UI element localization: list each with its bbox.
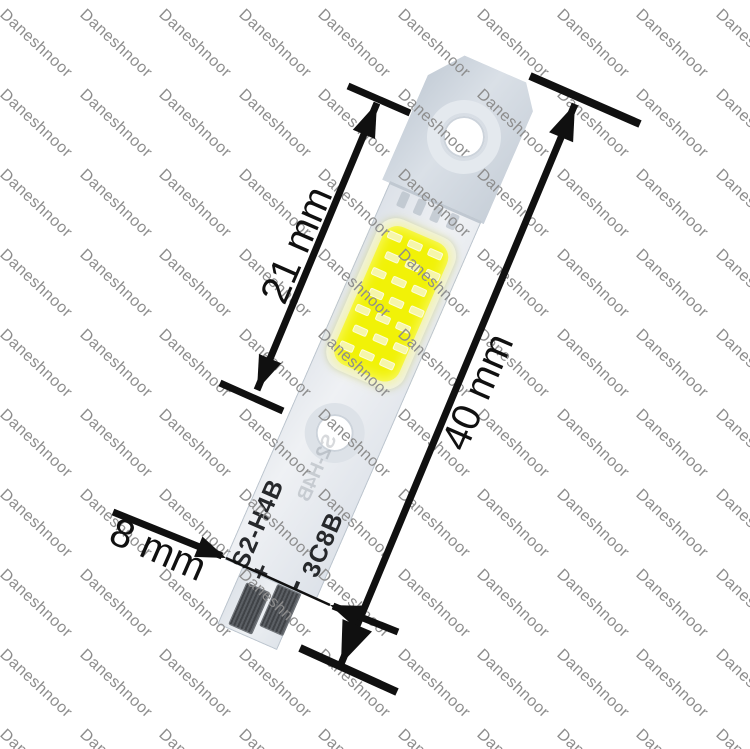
watermark-text: Daneshnoor — [155, 726, 235, 749]
led-die — [406, 239, 423, 252]
watermark-text: Daneshnoor — [155, 246, 235, 322]
watermark-text: Daneshnoor — [0, 486, 75, 562]
watermark-text: Daneshnoor — [711, 326, 750, 402]
watermark-text: Daneshnoor — [155, 6, 235, 82]
led-die — [392, 341, 409, 354]
watermark-text: Daneshnoor — [75, 326, 155, 402]
led-die — [388, 296, 405, 309]
watermark-text: Daneshnoor — [75, 406, 155, 482]
led-die — [374, 312, 391, 325]
led-die — [390, 275, 407, 288]
watermark-text: Daneshnoor — [552, 326, 632, 402]
arrowhead-40mm-top — [549, 104, 575, 142]
watermark-text: Daneshnoor — [393, 486, 473, 562]
watermark-text: Daneshnoor — [632, 406, 712, 482]
watermark-text: Daneshnoor — [632, 246, 712, 322]
watermark-text: Daneshnoor — [552, 646, 632, 722]
watermark-text: Daneshnoor — [552, 726, 632, 749]
led-die — [408, 305, 425, 318]
watermark-text: Daneshnoor — [75, 646, 155, 722]
led-die — [358, 349, 375, 362]
watermark-text: Daneshnoor — [314, 726, 394, 749]
watermark-text: Daneshnoor — [75, 726, 155, 749]
watermark-text: Daneshnoor — [0, 166, 75, 242]
led-die — [378, 357, 395, 370]
watermark-text: Daneshnoor — [473, 246, 553, 322]
watermark-text: Daneshnoor — [0, 246, 75, 322]
watermark-text: Daneshnoor — [711, 246, 750, 322]
watermark-text: Daneshnoor — [75, 166, 155, 242]
watermark-text: Daneshnoor — [0, 726, 75, 749]
watermark-text: Daneshnoor — [632, 166, 712, 242]
extension-tick-40mm-bottom — [300, 648, 397, 692]
led-die — [410, 284, 427, 297]
watermark-text: Daneshnoor — [552, 566, 632, 642]
watermark-text: Daneshnoor — [0, 86, 75, 162]
led-die — [404, 259, 421, 272]
watermark-text: Daneshnoor — [632, 566, 712, 642]
watermark-text: Daneshnoor — [711, 486, 750, 562]
led-die — [424, 268, 441, 281]
led-die — [338, 340, 355, 353]
watermark-text: Daneshnoor — [0, 6, 75, 82]
watermark-text: Daneshnoor — [711, 86, 750, 162]
led-die — [354, 303, 371, 316]
watermark-text: Daneshnoor — [0, 326, 75, 402]
watermark-text: Daneshnoor — [75, 246, 155, 322]
watermark-text: Daneshnoor — [314, 86, 394, 162]
arrowhead-21mm-top — [353, 103, 377, 139]
watermark-text: Daneshnoor — [632, 646, 712, 722]
watermark-text: Daneshnoor — [473, 566, 553, 642]
led-die — [367, 287, 384, 300]
watermark-text: Daneshnoor — [234, 246, 314, 322]
watermark-text: Daneshnoor — [234, 86, 314, 162]
led-die — [372, 333, 389, 346]
arrowhead-8mm-right — [330, 605, 362, 626]
watermark-text: Daneshnoor — [155, 326, 235, 402]
watermark-text: Daneshnoor — [393, 726, 473, 749]
watermark-text: Daneshnoor — [75, 566, 155, 642]
watermark-text: Daneshnoor — [393, 646, 473, 722]
watermark-text: Daneshnoor — [0, 406, 75, 482]
extension-tick-21mm-top — [348, 86, 410, 113]
watermark-text: Daneshnoor — [473, 646, 553, 722]
watermark-text: Daneshnoor — [155, 646, 235, 722]
watermark-text: Daneshnoor — [473, 406, 553, 482]
watermark-text: Daneshnoor — [234, 166, 314, 242]
watermark-text: Daneshnoor — [155, 86, 235, 162]
watermark-text: Daneshnoor — [393, 566, 473, 642]
watermark-text: Daneshnoor — [632, 6, 712, 82]
watermark-text: Daneshnoor — [552, 406, 632, 482]
watermark-text: Daneshnoor — [552, 486, 632, 562]
label-8mm: 8 mm — [103, 510, 212, 590]
led-die — [383, 251, 400, 264]
watermark-text: Daneshnoor — [632, 326, 712, 402]
watermark-text: Daneshnoor — [552, 166, 632, 242]
watermark-text: Daneshnoor — [711, 406, 750, 482]
led-die — [394, 321, 411, 334]
label-40mm: 40 mm — [433, 327, 522, 457]
watermark-text: Daneshnoor — [75, 86, 155, 162]
watermark-text: Daneshnoor — [632, 86, 712, 162]
watermark-text: Daneshnoor — [632, 486, 712, 562]
watermark-text: Daneshnoor — [711, 166, 750, 242]
watermark-text: Daneshnoor — [711, 726, 750, 749]
watermark-text: Daneshnoor — [0, 646, 75, 722]
watermark-text: Daneshnoor — [473, 726, 553, 749]
watermark-text: Daneshnoor — [0, 566, 75, 642]
watermark-text: Daneshnoor — [314, 646, 394, 722]
arrowhead-40mm-bottom — [341, 619, 372, 664]
watermark-text: Daneshnoor — [314, 6, 394, 82]
led-die — [386, 230, 403, 243]
product-photo: S2-H4B 3C8B + - S2-H4B DaneshnoorDaneshn… — [0, 0, 750, 749]
watermark-text: Daneshnoor — [473, 326, 553, 402]
watermark-text: Daneshnoor — [234, 726, 314, 749]
led-strip-board: S2-H4B 3C8B + - S2-H4B — [182, 42, 553, 671]
watermark-text: Daneshnoor — [552, 86, 632, 162]
watermark-text: Daneshnoor — [711, 566, 750, 642]
watermark-text: Daneshnoor — [632, 726, 712, 749]
watermark-text: Daneshnoor — [711, 646, 750, 722]
led-die — [370, 266, 387, 279]
watermark-text: Daneshnoor — [552, 6, 632, 82]
watermark-text: Daneshnoor — [75, 486, 155, 562]
watermark-text: Daneshnoor — [234, 6, 314, 82]
watermark-text: Daneshnoor — [473, 486, 553, 562]
watermark-text: Daneshnoor — [75, 6, 155, 82]
extension-tick-21mm-bottom — [220, 383, 283, 411]
dimension-line-8mm-left — [113, 512, 222, 556]
watermark-text: Daneshnoor — [155, 166, 235, 242]
dimension-line-8mm-right — [333, 606, 398, 632]
arrowhead-21mm-bottom — [257, 354, 281, 390]
watermark-text: Daneshnoor — [552, 246, 632, 322]
watermark-text: Daneshnoor — [711, 6, 750, 82]
led-die — [351, 324, 368, 337]
watermark-text: Daneshnoor — [155, 406, 235, 482]
led-die — [426, 247, 443, 260]
